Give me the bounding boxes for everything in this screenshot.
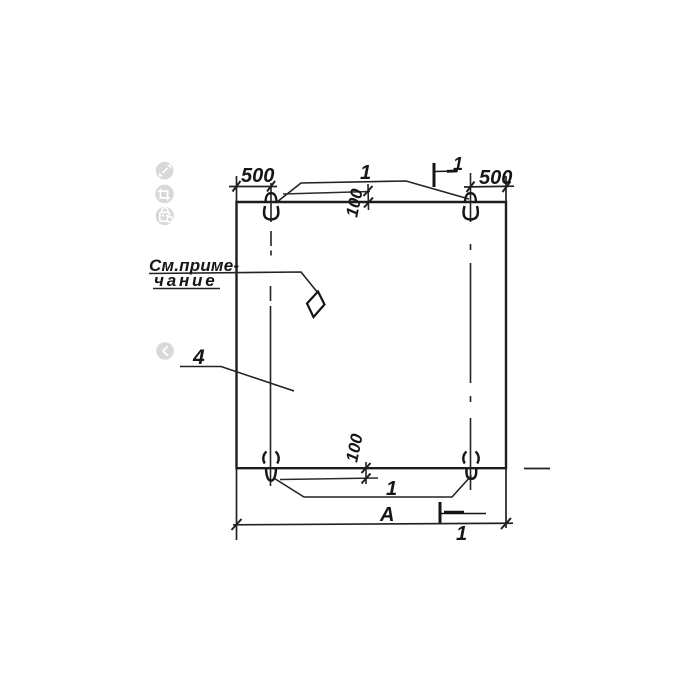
svg-text:1: 1 — [386, 478, 397, 500]
svg-text:4: 4 — [192, 346, 205, 369]
svg-text:1: 1 — [453, 154, 463, 174]
svg-text:А: А — [379, 504, 394, 526]
svg-text:1: 1 — [360, 162, 371, 184]
svg-text:500: 500 — [479, 167, 512, 189]
svg-text:1: 1 — [456, 523, 467, 545]
svg-text:500: 500 — [241, 165, 274, 187]
